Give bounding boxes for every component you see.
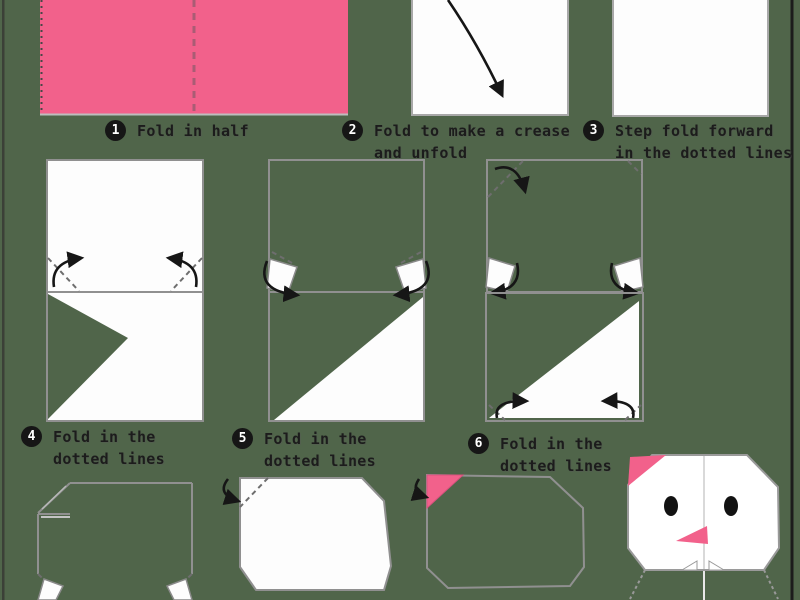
step5-caption: Fold in the dotted lines — [264, 428, 376, 472]
step2-caption: Fold to make a crease and unfold — [374, 120, 570, 164]
step6-number-badge: 6 — [468, 433, 489, 454]
step6-result-diagram — [416, 475, 584, 588]
step5-number-badge: 5 — [232, 428, 253, 449]
folded-corner-inner-edge — [42, 486, 66, 509]
body-edge-right — [764, 570, 778, 599]
fold-arrow-icon — [224, 479, 238, 501]
step1-number-badge: 1 — [105, 120, 126, 141]
step5-label: 5 Fold in the dotted lines — [232, 428, 376, 472]
white-layer-triangle — [274, 297, 423, 420]
caption-line2: dotted lines — [53, 448, 165, 470]
right-border-line — [791, 0, 794, 600]
fold-arrow-icon — [495, 167, 525, 191]
step3-paper — [613, 0, 768, 116]
white-paper — [412, 0, 568, 115]
caption-line2: dotted lines — [264, 450, 376, 472]
caption-line1: Fold in the — [264, 428, 376, 450]
octagon-outline — [427, 475, 584, 588]
caption-line1: Step fold forward — [615, 120, 792, 142]
step6-diagram — [486, 160, 643, 421]
bottom-flap-left — [38, 579, 63, 600]
step1-label: 1 Fold in half — [105, 120, 249, 142]
origami-instruction-sheet: 1 Fold in half 2 Fold to make a crease a… — [0, 0, 800, 600]
final-model — [628, 455, 779, 600]
body-edge-left — [630, 570, 645, 599]
caption-line2: dotted lines — [500, 455, 612, 477]
step1-caption: Fold in half — [137, 120, 249, 142]
step1-paper — [40, 0, 348, 115]
white-paper — [613, 0, 768, 116]
step6-label: 6 Fold in the dotted lines — [468, 433, 612, 477]
caption-line1: Fold in the — [53, 426, 165, 448]
step4-diagram — [47, 160, 203, 421]
caption-line2: and unfold — [374, 142, 570, 164]
step4-caption: Fold in the dotted lines — [53, 426, 165, 470]
step4-result-diagram — [38, 483, 192, 600]
left-eye — [664, 496, 678, 516]
octagon-paper — [240, 478, 391, 590]
step3-number-badge: 3 — [583, 120, 604, 141]
step2-label: 2 Fold to make a crease and unfold — [342, 120, 570, 164]
right-eye — [724, 496, 738, 516]
step5-result-diagram — [224, 478, 391, 590]
step4-number-badge: 4 — [21, 426, 42, 447]
left-border-line — [2, 0, 5, 600]
caption-line1: Fold in the — [500, 433, 612, 455]
step2-paper — [412, 0, 568, 115]
bottom-flap-right — [167, 579, 192, 600]
step5-diagram — [264, 160, 428, 421]
step4-label: 4 Fold in the dotted lines — [21, 426, 165, 470]
caption-line2: in the dotted lines — [615, 142, 792, 164]
top-half-paper — [47, 160, 203, 292]
step2-number-badge: 2 — [342, 120, 363, 141]
step3-caption: Step fold forward in the dotted lines — [615, 120, 792, 164]
folded-pink-corner — [427, 475, 463, 508]
step3-label: 3 Step fold forward in the dotted lines — [583, 120, 792, 164]
fold-arrow-icon — [416, 479, 426, 497]
caption-line1: Fold in half — [137, 120, 249, 142]
caption-line1: Fold to make a crease — [374, 120, 570, 142]
diagram-canvas — [0, 0, 800, 600]
step6-caption: Fold in the dotted lines — [500, 433, 612, 477]
